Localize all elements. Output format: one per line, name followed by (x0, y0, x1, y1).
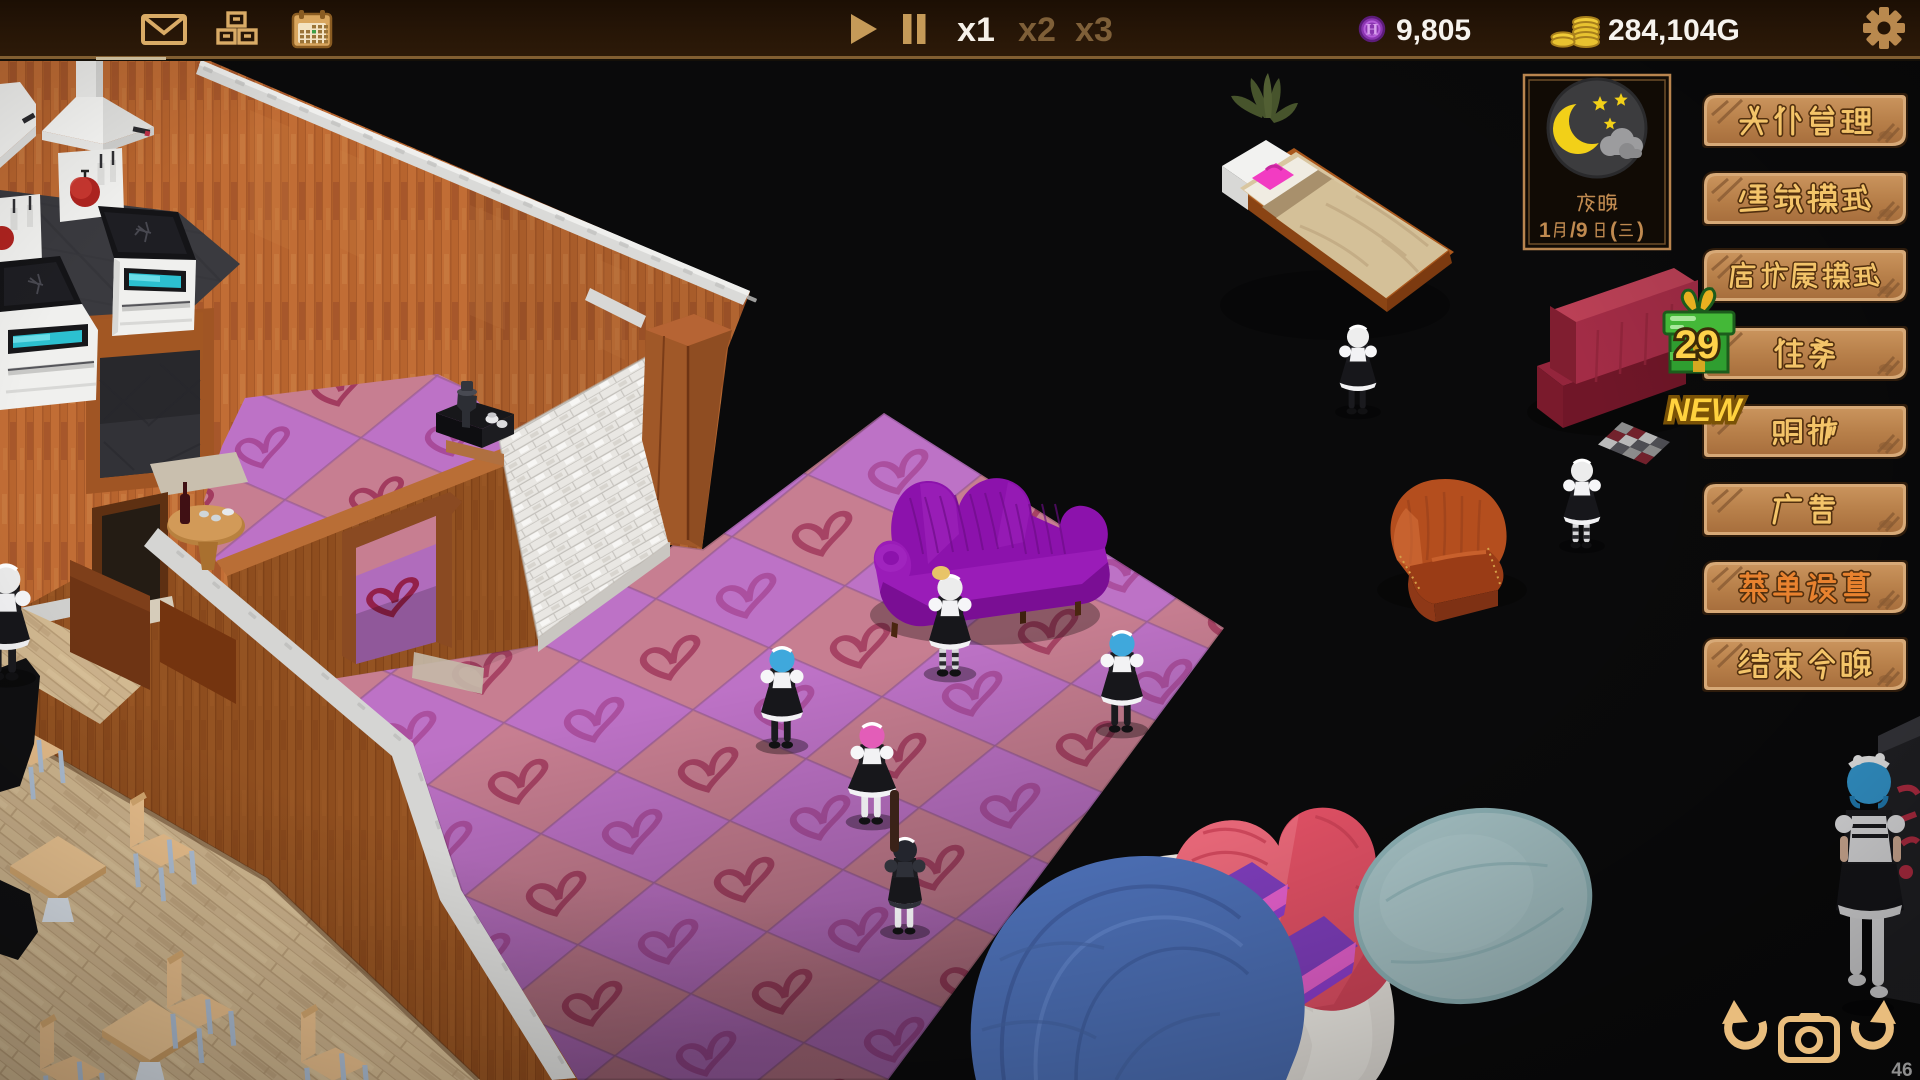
svg-text:/9: /9 (1570, 219, 1588, 242)
svg-text:1: 1 (1539, 219, 1551, 242)
svg-text:x2: x2 (1018, 11, 1056, 49)
svg-text:9,805: 9,805 (1396, 14, 1471, 47)
svg-text:x3: x3 (1075, 11, 1113, 49)
svg-text:NEW: NEW (1667, 392, 1744, 428)
svg-text:29: 29 (1675, 323, 1720, 367)
svg-text:x1: x1 (957, 11, 995, 49)
svg-text:46: 46 (1891, 1060, 1912, 1080)
svg-text:): ) (1637, 219, 1644, 242)
svg-text:284,104G: 284,104G (1608, 14, 1740, 47)
svg-text:(: ( (1610, 219, 1617, 242)
svg-text:H: H (1366, 22, 1379, 39)
